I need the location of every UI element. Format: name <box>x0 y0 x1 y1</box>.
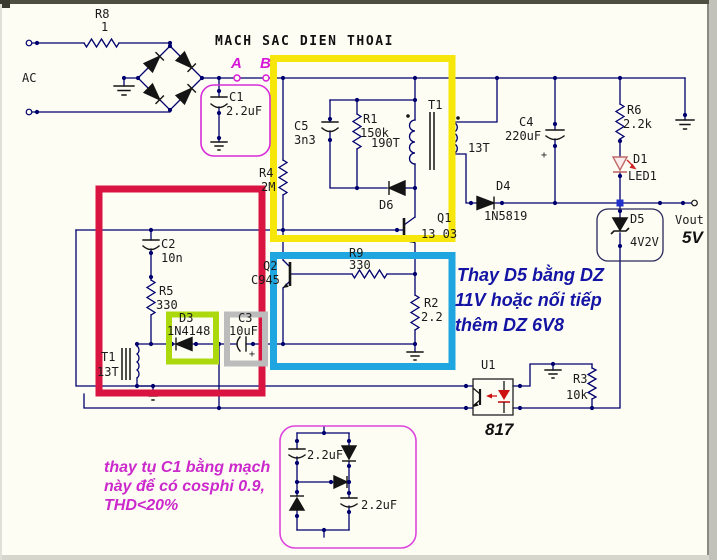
bridge-rectifier <box>144 52 196 104</box>
magenta-note: thay tụ C1 bằng mạch này để có cosphi 0.… <box>104 457 270 514</box>
ac-label: AC <box>22 71 36 85</box>
c4-polarity: + <box>541 150 547 161</box>
magenta-note-line1: thay tụ C1 bằng mạch <box>104 457 270 476</box>
d3-ref: D3 <box>179 311 193 325</box>
diode-d6-symbol <box>389 181 405 195</box>
u1-ref: U1 <box>481 358 495 372</box>
q1-ref: Q1 <box>437 211 451 225</box>
r1-ref: R1 <box>363 112 377 126</box>
resistor-r8-symbol <box>84 39 119 47</box>
terminals <box>26 40 697 206</box>
blue-note-line3: thêm DZ 6V8 <box>455 315 564 335</box>
schematic-title: MACH SAC DIEN THOAI <box>215 34 394 49</box>
d5-ref: D5 <box>630 212 644 226</box>
magenta-note-line2: này để có cosphi 0.9, <box>104 477 265 495</box>
t1-ref: T1 <box>428 98 442 112</box>
t1-primary-turns: 190T <box>371 136 400 150</box>
c1-value: 2.2uF <box>226 104 262 118</box>
d4-part: 1N5819 <box>484 209 527 223</box>
c4-ref: C4 <box>519 115 533 129</box>
vout-value: 5V <box>682 228 704 247</box>
magenta-note-line3: THD<20% <box>104 497 178 514</box>
r3-value: 10k <box>566 388 588 402</box>
r4-ref: R4 <box>259 166 273 180</box>
valleyfill-cap-top-value: 2.2uF <box>307 448 343 462</box>
r4-value: 2M <box>261 180 275 194</box>
node-b-label: B <box>260 55 271 72</box>
highlight-box-yellow <box>274 59 453 239</box>
r8-value: 1 <box>101 20 108 34</box>
resistor-r3-symbol <box>588 368 596 399</box>
q2-ref: Q2 <box>263 259 277 273</box>
r3-ref: R3 <box>573 372 587 386</box>
blue-note-line1: Thay D5 bằng DZ <box>457 264 605 285</box>
circuit-schematic: MACH SAC DIEN THOAI AC R8 1 A B C1 2.2uF… <box>0 0 717 560</box>
resistor-r4-symbol <box>279 160 287 195</box>
blue-junction-node <box>617 200 624 207</box>
t1-feedback-winding <box>137 346 139 378</box>
capacitor-c1-symbol <box>211 97 227 108</box>
d3-part: 1N4148 <box>167 324 210 338</box>
node-a-label: A <box>230 55 242 72</box>
vout-label: Vout <box>675 213 704 227</box>
r2-value: 2.2 <box>421 310 443 324</box>
blue-note: Thay D5 bằng DZ 11V hoặc nối tiếp thêm D… <box>455 264 605 335</box>
vout-terminal <box>692 200 698 206</box>
r2-ref: R2 <box>424 296 438 310</box>
valleyfill-cap-bottom-value: 2.2uF <box>361 498 397 512</box>
t1-primary-winding <box>410 120 416 164</box>
transistor-q2-symbol <box>283 262 290 288</box>
resistor-r2-symbol <box>411 295 419 330</box>
zener-d5-symbol <box>611 218 629 234</box>
c3-ref: C3 <box>238 311 252 325</box>
c5-value: 3n3 <box>294 133 316 147</box>
u1-part: 817 <box>485 420 515 439</box>
node-b-terminal <box>263 75 269 81</box>
c5-ref: C5 <box>294 119 308 133</box>
transformer-feedback-core <box>122 348 130 380</box>
c3-value: 10uF <box>229 324 258 338</box>
c2-ref: C2 <box>161 237 175 251</box>
capacitor-c4-symbol <box>546 130 564 140</box>
diode-d4-symbol <box>477 197 494 210</box>
c4-value: 220uF <box>505 129 541 143</box>
r6-value: 2.2k <box>623 117 653 131</box>
d1-ref: D1 <box>633 152 647 166</box>
resistor-r5-symbol <box>147 280 155 315</box>
c1-ref: C1 <box>229 90 243 104</box>
r6-ref: R6 <box>627 103 641 117</box>
capacitor-c2-symbol <box>143 240 159 250</box>
t1-feedback-ref: T1 <box>101 350 115 364</box>
q1-part: 13 03 <box>421 227 457 241</box>
t1-secondary-turns: 13T <box>468 141 490 155</box>
window-frame <box>0 0 717 560</box>
d4-ref: D4 <box>496 179 510 193</box>
d6-ref: D6 <box>379 198 393 212</box>
optocoupler-u1-symbol <box>473 379 513 415</box>
node-a-terminal <box>234 75 240 81</box>
capacitor-c3-symbol <box>237 337 246 351</box>
r8-ref: R8 <box>95 7 109 21</box>
schematic-page: MACH SAC DIEN THOAI AC R8 1 A B C1 2.2uF… <box>0 0 717 560</box>
diode-d3-symbol <box>176 338 192 351</box>
c2-value: 10n <box>161 251 183 265</box>
t1-feedback-turns: 13T <box>97 365 119 379</box>
d1-part: LED1 <box>628 169 657 183</box>
capacitor-c5-symbol <box>322 122 338 132</box>
q2-part: C945 <box>251 273 280 287</box>
d5-part: 4V2V <box>630 235 659 249</box>
r5-value: 330 <box>156 298 178 312</box>
blue-note-line2: 11V hoặc nối tiếp <box>455 290 602 310</box>
c3-polarity: + <box>249 349 255 360</box>
r5-ref: R5 <box>159 284 173 298</box>
r9-value: 330 <box>349 258 371 272</box>
